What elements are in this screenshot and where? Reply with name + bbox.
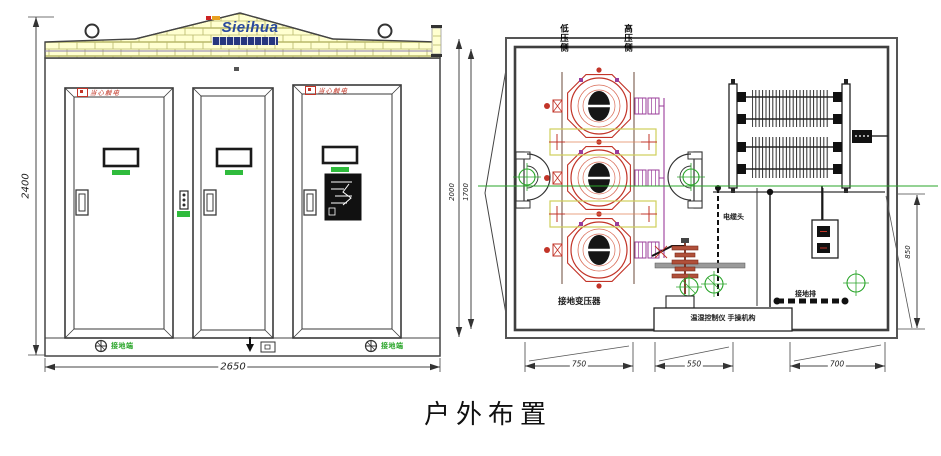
controller-label: 温湿控制仪 手操机构 xyxy=(656,313,790,323)
bottom-dimension-label: 700 xyxy=(828,360,846,369)
indicator-lamp xyxy=(112,170,130,175)
ground-terminal-label: 接地端 xyxy=(381,341,404,351)
indicator-lamp xyxy=(331,167,349,172)
electric-hazard-icon xyxy=(77,88,88,97)
lifting-ring-icon xyxy=(379,25,392,38)
high-voltage-side-label: 高压侧 xyxy=(624,24,633,53)
grounding-transformers xyxy=(544,67,664,288)
display-window xyxy=(323,147,357,163)
ground-bar-label: 接地排 xyxy=(795,289,816,299)
junction-box xyxy=(666,296,694,308)
page-title: 户外布置 xyxy=(383,394,593,431)
depth-outer-dimension-label: 2000 xyxy=(448,183,456,201)
warning-label: 当心触电 xyxy=(77,87,120,97)
line-art xyxy=(0,0,941,456)
cable-head-label: 电缆头 xyxy=(723,212,744,222)
depth-inner-dimension-label: 1700 xyxy=(462,183,470,201)
drawing-canvas: 2400 2650 Sieihua 当心触电 当心触电 接地端 接地端 低压侧 … xyxy=(0,0,941,456)
ground-terminal-icon xyxy=(96,341,107,352)
width-dimension-label: 2650 xyxy=(218,362,247,373)
bottom-dimension-label: 550 xyxy=(685,360,703,369)
door-left xyxy=(65,88,173,338)
display-window xyxy=(217,149,251,166)
cabinet-elevation xyxy=(28,13,442,372)
roof-section-marker xyxy=(431,25,442,57)
door-middle xyxy=(193,88,273,338)
lifting-ring-icon xyxy=(86,25,99,38)
bottom-dimension-label: 750 xyxy=(570,360,588,369)
ground-terminal-icon xyxy=(366,341,377,352)
ground-terminal-label: 接地端 xyxy=(111,341,134,351)
indicator-lamp xyxy=(225,170,243,175)
display-window xyxy=(104,149,138,166)
transformer-label: 接地变压器 xyxy=(558,295,601,307)
door-right xyxy=(293,85,401,338)
brand-logo: Sieihua xyxy=(204,19,296,36)
brand-logo-subbar xyxy=(212,37,278,45)
electric-hazard-icon xyxy=(305,86,316,95)
height-dimension-label: 2400 xyxy=(21,173,32,198)
right-dimension-label: 850 xyxy=(904,245,912,258)
mimic-diagram-panel xyxy=(325,174,361,220)
low-voltage-side-label: 低压侧 xyxy=(560,24,569,53)
warning-label: 当心触电 xyxy=(305,85,348,95)
